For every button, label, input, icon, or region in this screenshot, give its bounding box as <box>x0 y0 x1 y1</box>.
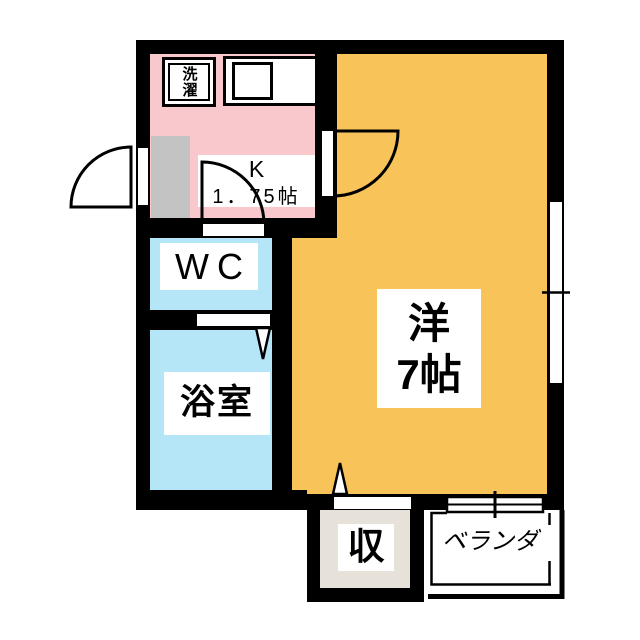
wc-label: WC <box>175 247 251 287</box>
bath-label: 浴室 <box>180 384 254 423</box>
storage-door-opening <box>334 497 411 509</box>
storage-label: 収 <box>348 527 385 568</box>
entrance-door-arc <box>71 147 131 207</box>
floorplan-canvas: 洗濯 K 1．75帖 WC 浴室 洋 7帖 収 ベランダ <box>0 0 640 640</box>
kitchen-size-label: 1．75帖 <box>198 180 315 209</box>
wall-left <box>136 40 150 510</box>
sliding-window <box>548 200 564 385</box>
laundry-label: 洗濯 <box>179 66 200 98</box>
main-room-floor-extension <box>292 238 337 496</box>
main-room-floor <box>337 54 548 496</box>
kitchen-sink <box>232 62 273 100</box>
entry-mat <box>151 136 190 218</box>
veranda-label-box: ベランダ <box>434 527 546 557</box>
storage-label-box: 収 <box>338 524 394 571</box>
kitchen-label-box: K 1．75帖 <box>198 155 315 207</box>
wall-bottom-main <box>290 494 564 510</box>
laundry-box: 洗濯 <box>162 57 216 107</box>
kitchen-door-opening <box>203 224 264 236</box>
laundry-box-inner: 洗濯 <box>168 63 210 101</box>
wall-top <box>136 40 564 54</box>
bath-label-box: 浴室 <box>164 372 270 435</box>
wc-label-box: WC <box>160 243 258 290</box>
veranda-label: ベランダ <box>442 529 538 555</box>
entrance-door-leaf <box>136 146 150 207</box>
wall-wc-right <box>272 238 292 496</box>
main-room-door-leaf <box>320 129 335 198</box>
kitchen-name-label: K <box>198 156 315 183</box>
main-room-label-box: 洋 7帖 <box>377 289 481 408</box>
bath-door-opening <box>197 314 270 326</box>
main-room-name-label: 洋 <box>408 298 450 350</box>
wall-storage-bottom <box>307 588 424 602</box>
main-room-size-label: 7帖 <box>396 350 461 400</box>
